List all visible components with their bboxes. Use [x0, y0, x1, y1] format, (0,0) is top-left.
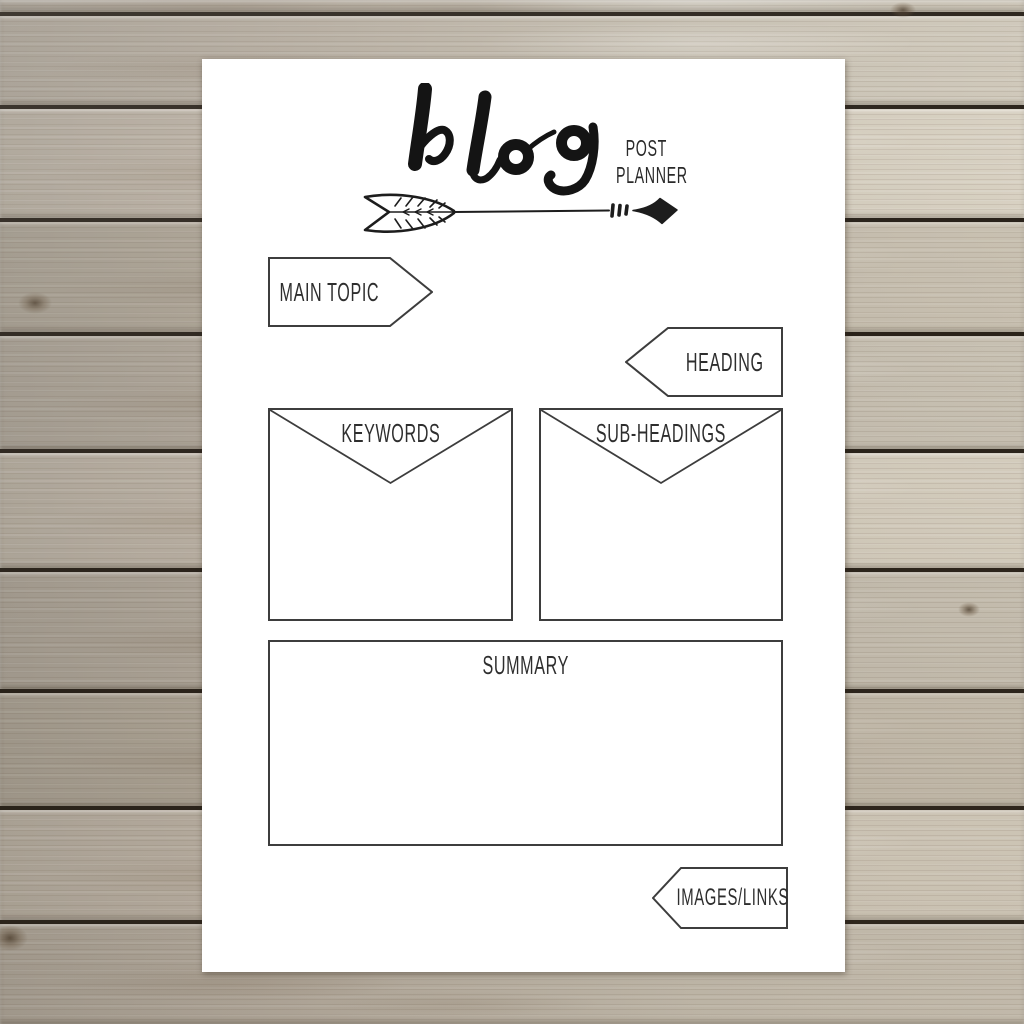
subtitle-planner: PLANNER: [594, 162, 698, 189]
keywords-label: KEYWORDS: [270, 418, 511, 449]
keywords-box: KEYWORDS: [268, 408, 513, 621]
main-topic-tag: MAIN TOPIC: [268, 257, 433, 327]
subtitle: POST PLANNER: [594, 135, 698, 189]
sub-headings-box: SUB-HEADINGS: [539, 408, 783, 621]
heading-label: HEADING: [625, 327, 783, 397]
planner-photo-scene: blog POST PLANNER: [0, 0, 1024, 1024]
main-topic-label: MAIN TOPIC: [268, 257, 433, 327]
arrow-icon: [359, 190, 679, 236]
images-links-tag: IMAGES/LINKS: [652, 867, 788, 929]
images-links-label: IMAGES/LINKS: [652, 867, 788, 929]
subtitle-post: POST: [594, 135, 698, 162]
summary-label: SUMMARY: [270, 650, 781, 681]
paper-sheet: blog POST PLANNER: [202, 59, 845, 972]
summary-box: SUMMARY: [268, 640, 783, 846]
heading-tag: HEADING: [625, 327, 783, 397]
sub-headings-label: SUB-HEADINGS: [541, 418, 781, 449]
